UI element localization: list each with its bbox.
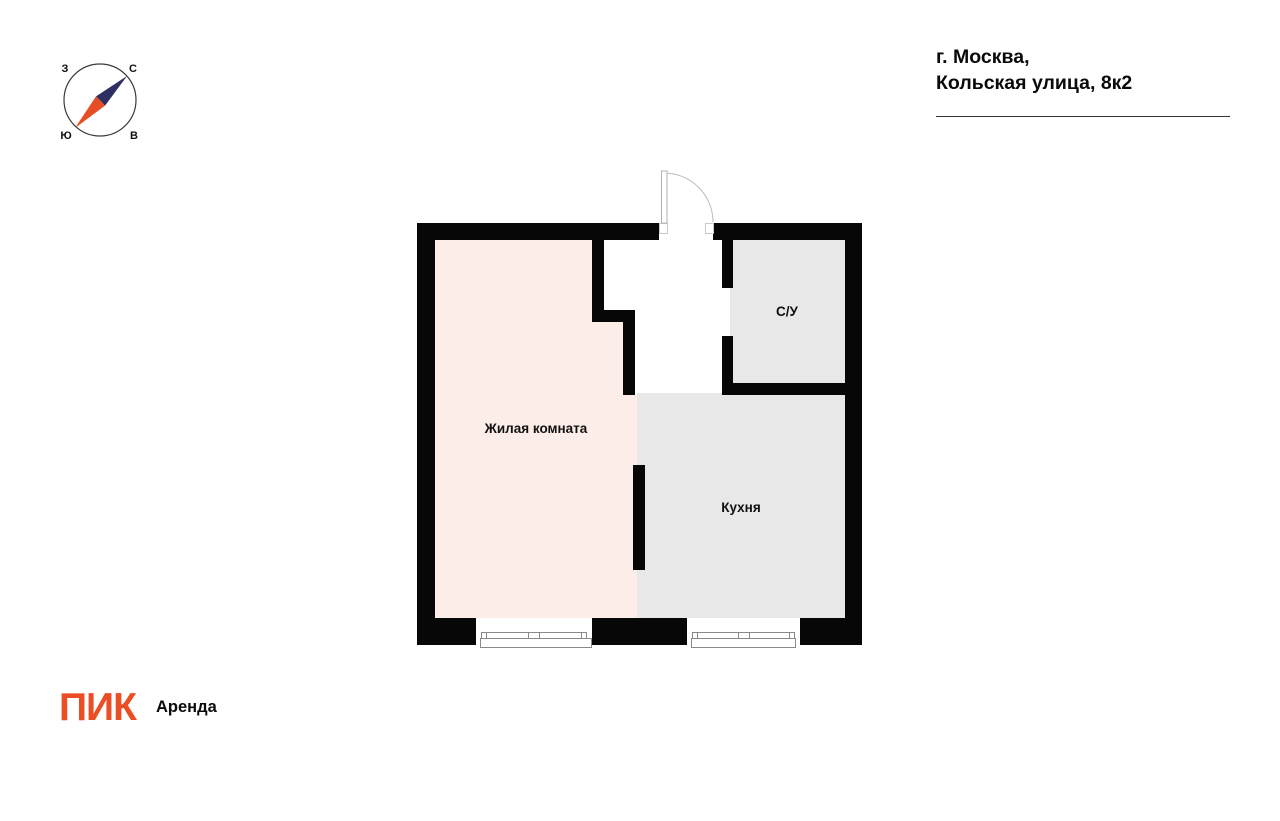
- address-city: г. Москва,: [936, 44, 1236, 70]
- wall-living-kitchen-partition: [633, 465, 645, 570]
- wall-hall-left-upper: [592, 240, 604, 312]
- window-frame: [693, 633, 795, 639]
- address-street: Кольская улица, 8к2: [936, 70, 1236, 96]
- logo-pik-text: ПИК: [59, 688, 136, 728]
- label-bathroom: С/У: [776, 304, 799, 319]
- window-sill: [692, 639, 796, 648]
- page: З С Ю В г. Москва, Кольская улица, 8к2: [0, 0, 1280, 821]
- window-frame: [482, 633, 587, 639]
- compass-label-south: Ю: [60, 130, 71, 142]
- wall-left: [417, 223, 435, 645]
- window-sill: [481, 639, 592, 648]
- door-jamb-right: [706, 224, 714, 234]
- wall-top: [417, 223, 862, 240]
- label-living-room: Жилая комната: [484, 421, 588, 436]
- door-swing-arc: [664, 173, 713, 222]
- compass-needle-south-half: [75, 96, 105, 128]
- wall-bathroom-bottom: [722, 383, 845, 395]
- label-kitchen: Кухня: [721, 500, 760, 515]
- compass-label-north: С: [129, 63, 137, 75]
- window-living-room: [476, 618, 592, 648]
- compass-label-west: З: [62, 63, 69, 75]
- window-kitchen: [687, 618, 800, 648]
- pik-arenda-logo: ПИК Аренда: [59, 688, 319, 738]
- wall-bathroom-left-upper: [722, 240, 733, 288]
- compass-label-east: В: [130, 130, 138, 142]
- wall-right: [845, 223, 862, 645]
- door-jamb-left: [660, 224, 668, 234]
- floor-plan: Жилая комната Кухня С/У: [400, 160, 880, 660]
- address-divider: [936, 116, 1230, 117]
- logo-arenda-text: Аренда: [156, 698, 217, 717]
- address-block: г. Москва, Кольская улица, 8к2: [936, 44, 1236, 96]
- wall-hall-left-lower: [623, 310, 635, 395]
- compass-rose: З С Ю В: [50, 50, 154, 154]
- entrance-door: [659, 171, 714, 240]
- door-leaf: [662, 171, 668, 223]
